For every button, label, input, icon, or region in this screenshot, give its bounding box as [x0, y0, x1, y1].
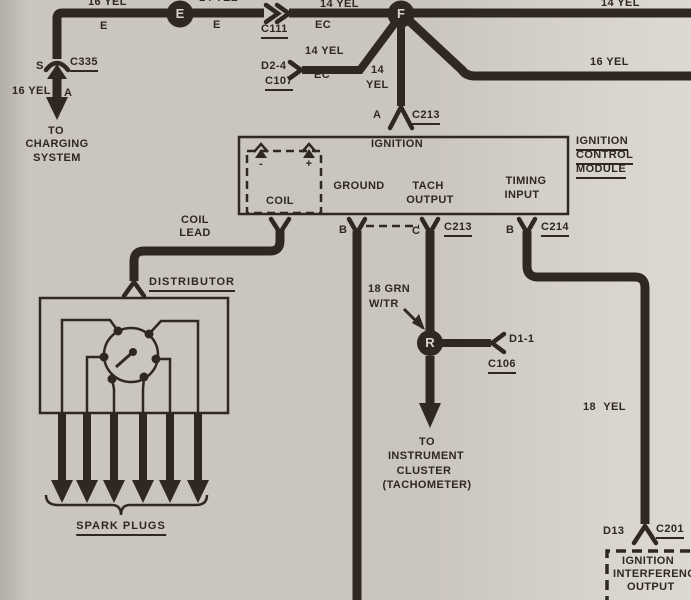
interference-box-label: OUTPUT	[627, 582, 675, 594]
wire-gauge-label: 16 YEL	[12, 86, 51, 98]
wire-color-label: 18 GRN	[368, 284, 410, 296]
module-name: MODULE	[576, 164, 626, 179]
connector-label-c213: C213	[412, 110, 440, 125]
connector-label-c201: C201	[656, 524, 684, 539]
spark-plugs-label: SPARK PLUGS	[76, 521, 166, 536]
terminal-label-a: A	[64, 88, 72, 100]
pin-label-tach: OUTPUT	[406, 195, 454, 207]
timing-wire	[519, 219, 656, 543]
terminal-label-s: S	[36, 61, 44, 73]
wire-gauge-label: 14 YEL	[601, 0, 640, 10]
connector-label-c111: C111	[261, 24, 288, 39]
connector-label-c213: C213	[444, 222, 472, 237]
coil-terminal-plus-icon	[302, 144, 316, 158]
destination-tachometer: (TACHOMETER)	[383, 480, 472, 492]
wire-gauge-label: YEL	[366, 80, 389, 92]
terminal-label-d1-1: D1-1	[509, 334, 534, 346]
terminal-label-d13: D13	[603, 526, 624, 538]
wire-color-label: W/TR	[369, 299, 399, 311]
schematic-page: 16 YEL E E 14 YEL E C111 EC 14 YEL F 14 …	[0, 0, 691, 600]
distributor-internal-wires	[62, 320, 198, 413]
destination-tachometer: INSTRUMENT	[388, 451, 464, 463]
interference-box-label: INTERFERENCE	[613, 569, 691, 581]
junction-r-letter: R	[425, 335, 434, 350]
wire-gauge-label: 14	[371, 65, 384, 77]
junction-f-letter: F	[397, 6, 405, 21]
destination-tachometer: TO	[419, 437, 435, 449]
terminal-label-ec: EC	[314, 70, 330, 82]
connector-label-c106: C106	[488, 359, 516, 374]
wire-color-leader-line	[404, 309, 425, 330]
pin-label-tach: TACH	[412, 181, 443, 193]
pin-label-ground: GROUND	[333, 181, 384, 193]
terminal-label-e: E	[213, 20, 221, 32]
terminal-label-b: B	[339, 225, 347, 237]
wiring-diagram-canvas	[0, 0, 691, 600]
interference-box-label: IGNITION	[622, 556, 674, 568]
distributor-label: DISTRIBUTOR	[149, 277, 235, 292]
terminal-label-d2-4: D2-4	[261, 61, 286, 73]
wire-gauge-label: 14 YEL	[199, 0, 238, 5]
connector-label-c335: C335	[70, 57, 98, 72]
connector-label-c107: C107	[265, 76, 293, 91]
coil-plus-terminal-label: +	[306, 159, 313, 171]
wire-gauge-label: 14 YEL	[305, 46, 344, 58]
connector-c111-icon	[264, 5, 289, 22]
terminal-label-ec: EC	[315, 20, 331, 32]
coil-terminal-minus-icon	[254, 144, 268, 158]
tach-output-branch-wire	[441, 334, 504, 352]
wire-gauge-label: 18 YEL	[583, 402, 626, 414]
ground-wire	[349, 219, 365, 600]
pin-label-timing: INPUT	[505, 190, 540, 202]
distributor-cap-icon	[100, 327, 161, 384]
spark-plugs-brace	[46, 495, 207, 515]
destination-charging: TO	[48, 126, 64, 138]
wire-gauge-label: 14 YEL	[320, 0, 359, 11]
spark-plug-arrows	[51, 413, 209, 503]
wire-gauge-label: 16 YEL	[590, 57, 629, 69]
coil-lead-label: COIL	[181, 215, 209, 227]
terminal-label-b: B	[506, 225, 514, 237]
coil-minus-terminal-label: -	[259, 159, 263, 171]
module-title: IGNITION	[371, 139, 423, 151]
junction-e-letter: E	[176, 6, 185, 21]
sixteen-yel-wire	[403, 15, 691, 76]
connector-label-c214: C214	[541, 222, 569, 237]
destination-charging: CHARGING	[25, 139, 88, 151]
pin-label-timing: TIMING	[506, 176, 547, 188]
terminal-label-c: C	[412, 226, 420, 238]
destination-charging: SYSTEM	[33, 153, 81, 165]
coil-lead-label: LEAD	[179, 228, 211, 240]
terminal-label-e: E	[100, 21, 108, 33]
wire-gauge-label: 16 YEL	[88, 0, 127, 9]
terminal-label-a: A	[373, 110, 381, 122]
destination-tachometer: CLUSTER	[397, 466, 452, 478]
coil-label: COIL	[266, 196, 294, 208]
